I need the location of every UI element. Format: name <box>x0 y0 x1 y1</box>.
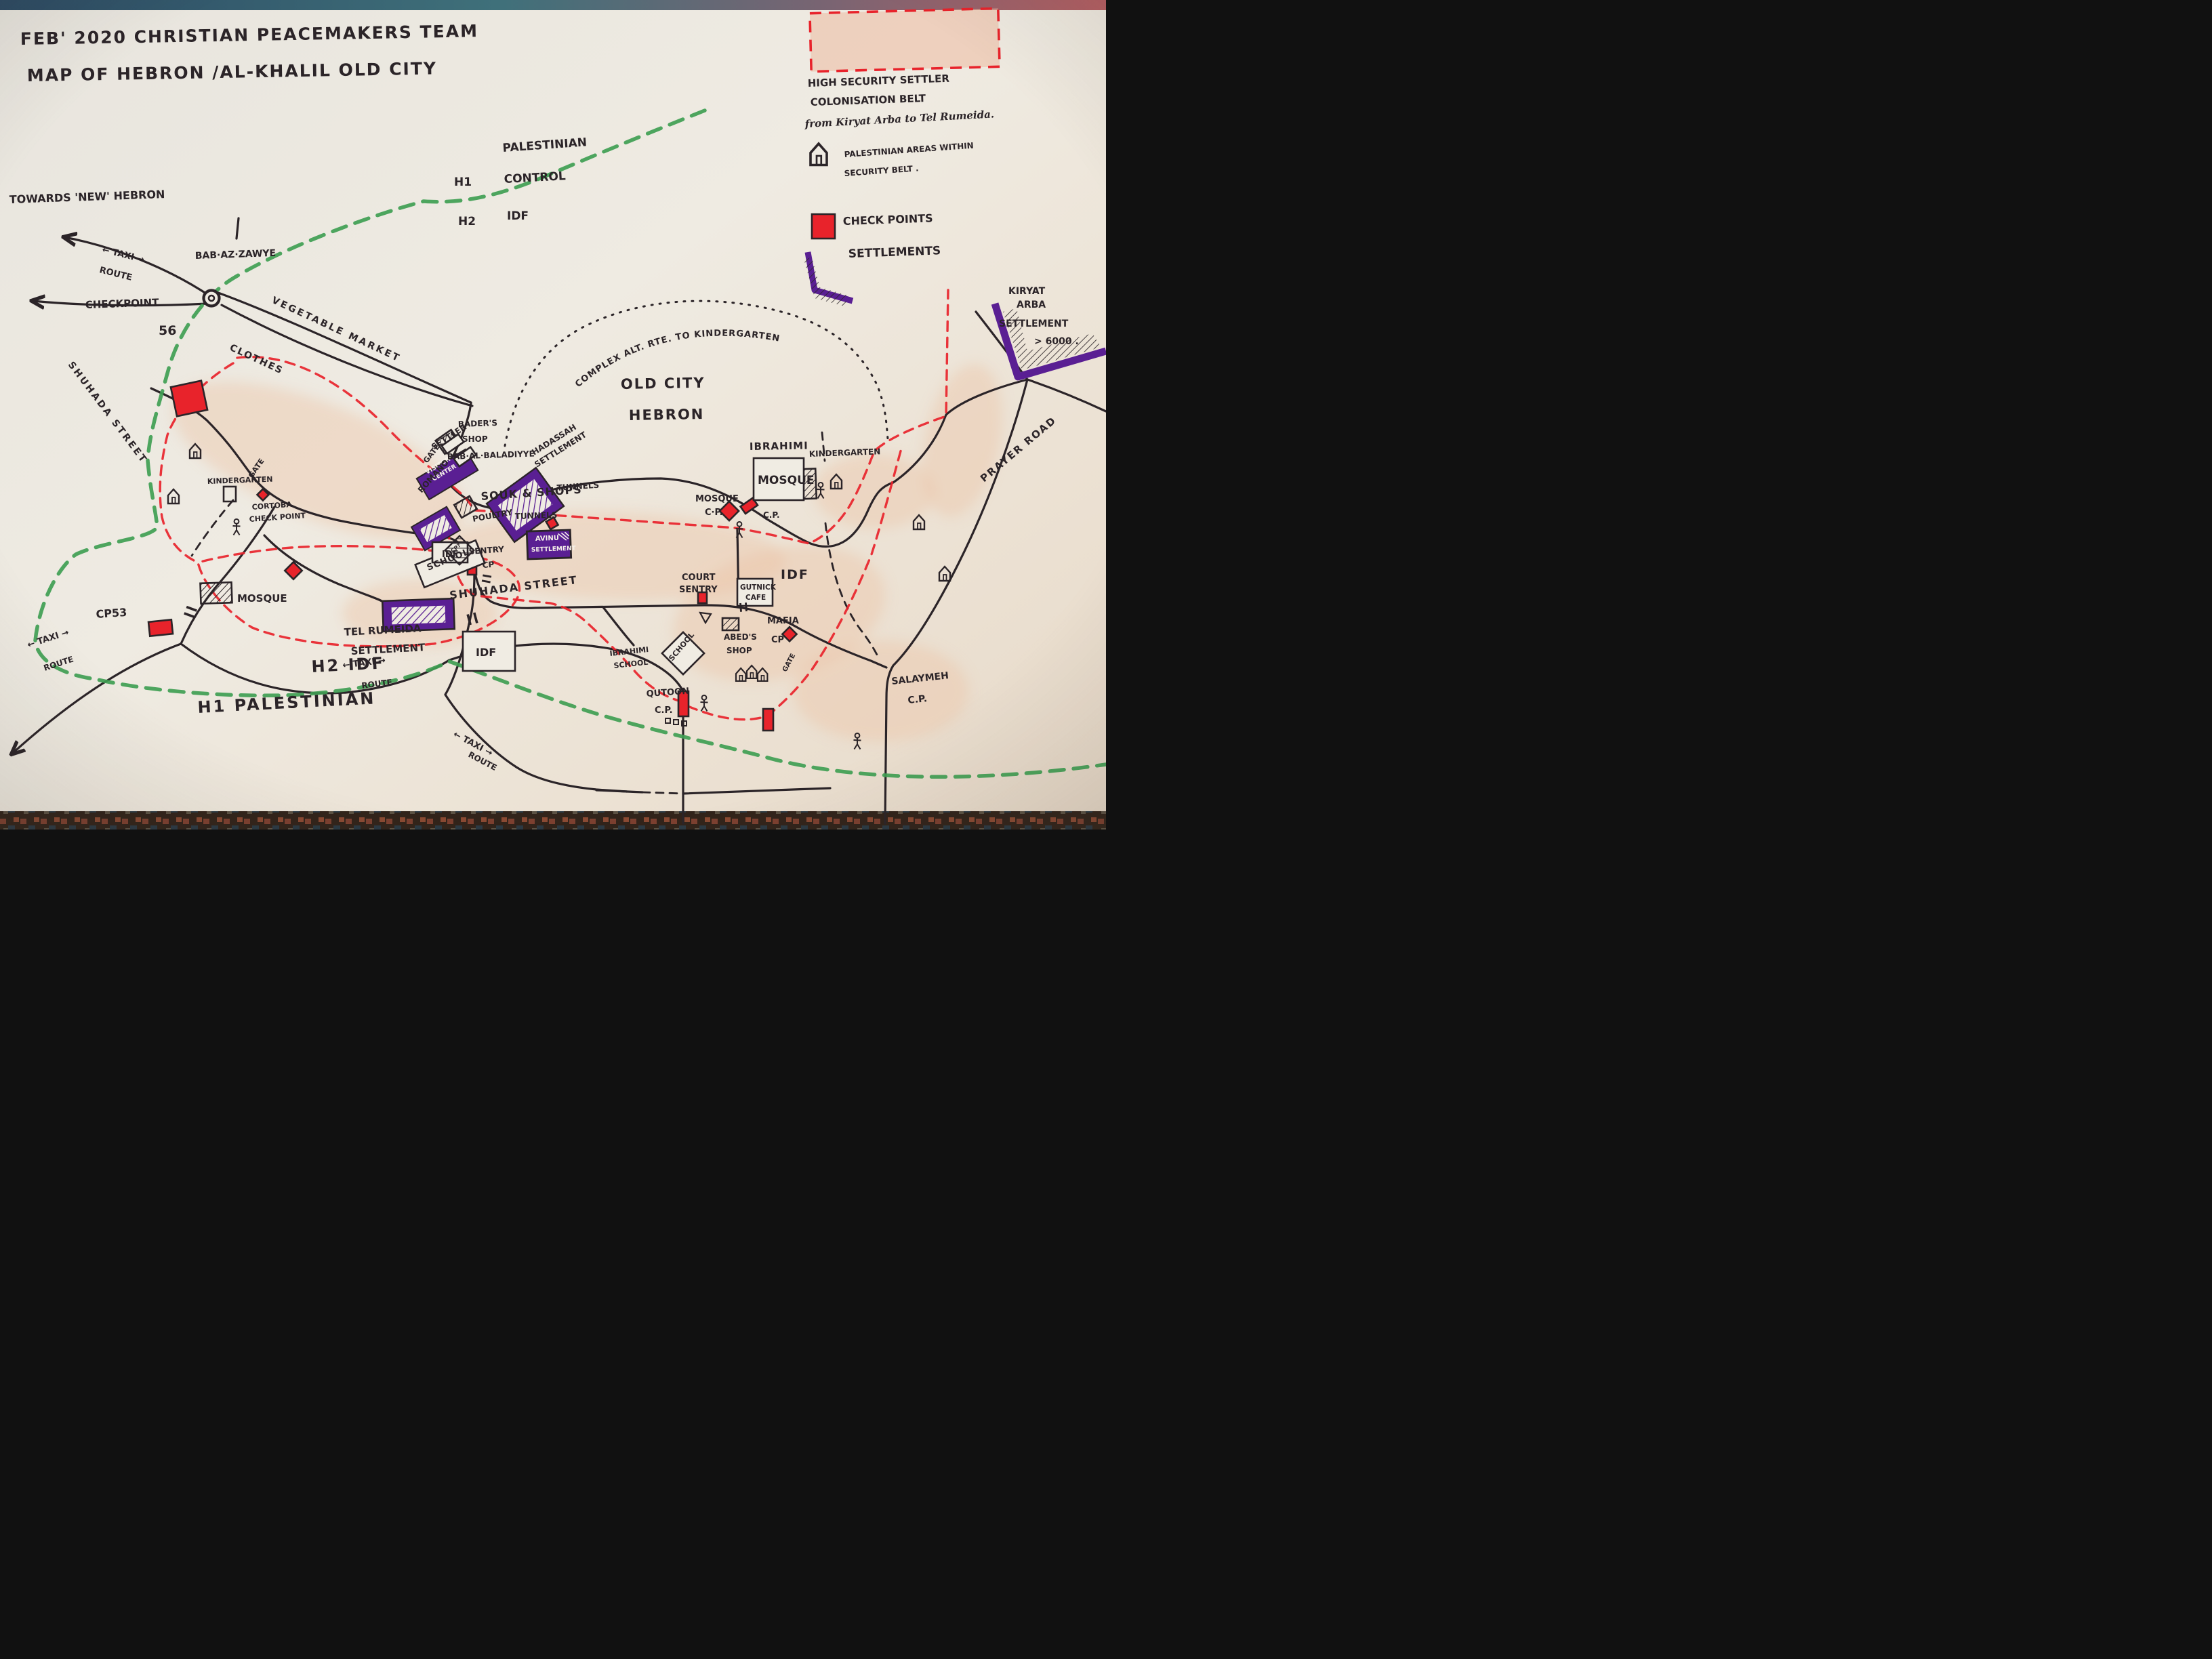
label-mafia: MAFIA <box>767 616 799 626</box>
label-tunnels-lower: TUNNELS <box>515 510 558 521</box>
photo-of-hand-drawn-map: FEB' 2020 CHRISTIAN PEACEMAKERS TEAM MAP… <box>0 0 1106 829</box>
label-abeds: ABED'S <box>724 632 757 642</box>
label-court: COURT <box>682 573 716 583</box>
label-mosque-left: MOSQUE <box>237 592 287 605</box>
map-canvas: FEB' 2020 CHRISTIAN PEACEMAKERS TEAM MAP… <box>0 0 1106 829</box>
label-h1: H1 <box>454 176 472 189</box>
label-salaymeh-cp: C.P. <box>907 693 928 706</box>
label-cp-2: C.P. <box>763 510 780 520</box>
label-idf-east: IDF <box>781 567 809 582</box>
label-idf-top: IDF <box>507 209 529 223</box>
label-h2: H2 <box>458 215 476 228</box>
photo-vignette <box>0 0 1106 829</box>
label-gutnick: GUTNICK <box>740 583 777 592</box>
label-56: 56 <box>159 323 176 338</box>
label-old-city: OLD CITY <box>621 375 705 392</box>
label-ibrahimi: IBRAHIMI <box>750 439 808 453</box>
label-mosque-cp-2: C·P. <box>705 508 723 518</box>
label-mosque-cp-1: MOSQUE <box>695 494 739 504</box>
label-baders-shop: SHOP <box>462 434 488 444</box>
label-hebron: HEBRON <box>629 406 705 424</box>
label-6000: > 6000 . <box>1034 336 1079 347</box>
label-cp53: CP53 <box>96 606 127 621</box>
label-cafe: CAFE <box>745 594 766 602</box>
label-baders: BADER'S <box>458 418 498 429</box>
label-qutoon-cp: C.P. <box>655 705 673 716</box>
label-sentry-cp: CP <box>482 560 495 570</box>
label-checkpoint: CHECKPOINT <box>85 296 160 311</box>
label-idf-telrumeida: IDF <box>476 646 496 659</box>
label-court-sentry: SENTRY <box>679 585 718 595</box>
label-kiryat: KIRYAT <box>1008 286 1046 297</box>
label-ibrahimi-mosque: MOSQUE <box>758 474 814 487</box>
label-abeds-shop: SHOP <box>726 646 752 655</box>
label-mafia-cp: CP <box>771 635 784 645</box>
label-kiryat-settlement: SETTLEMENT <box>999 319 1069 329</box>
label-arba: ARBA <box>1017 300 1046 310</box>
label-avinu: AVINU <box>535 535 559 543</box>
